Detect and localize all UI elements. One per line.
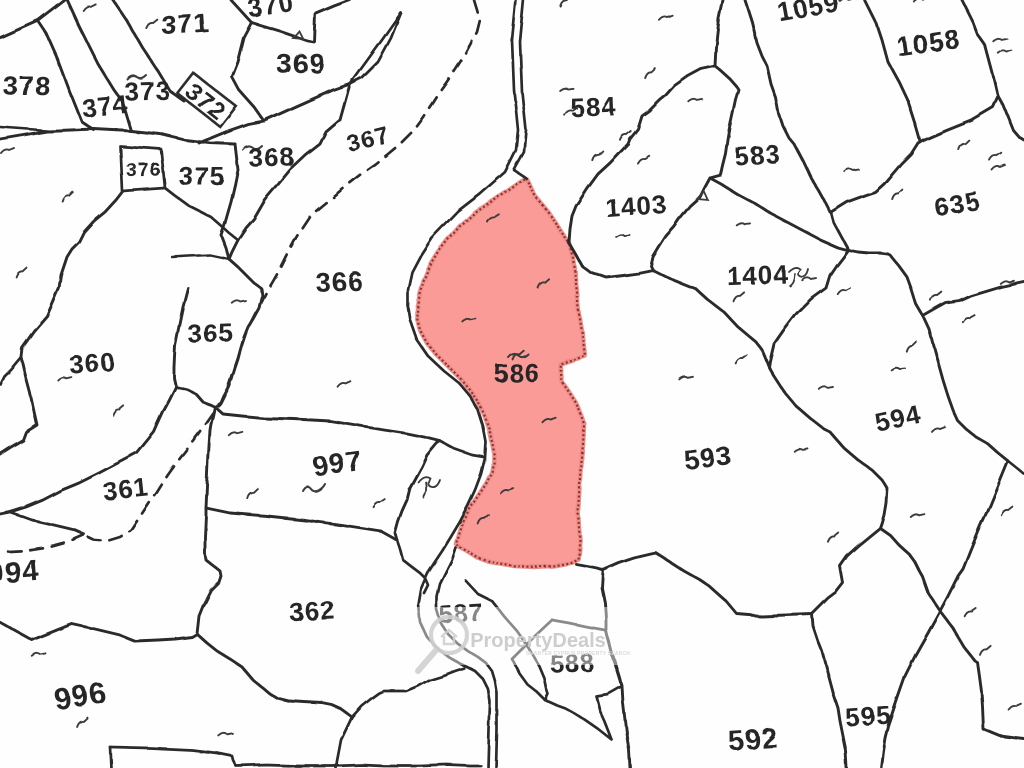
svg-text:360: 360 — [68, 346, 116, 379]
svg-text:374: 374 — [80, 89, 129, 124]
svg-text:375: 375 — [179, 161, 225, 191]
svg-text:362: 362 — [289, 595, 337, 627]
svg-text:373: 373 — [124, 75, 171, 107]
svg-text:378: 378 — [3, 71, 51, 101]
svg-text:PropertyDeals: PropertyDeals — [470, 630, 606, 652]
svg-text:592: 592 — [727, 722, 779, 756]
svg-text:376: 376 — [126, 159, 161, 181]
svg-text:361: 361 — [101, 472, 150, 507]
svg-text:1404: 1404 — [726, 259, 789, 291]
svg-text:1403: 1403 — [604, 189, 668, 223]
svg-text:583: 583 — [733, 138, 781, 171]
svg-text:586: 586 — [494, 358, 540, 388]
svg-text:366: 366 — [315, 266, 364, 298]
svg-text:371: 371 — [160, 7, 210, 40]
svg-text:593: 593 — [683, 441, 734, 476]
svg-text:SMARTER CYPRUS PROPERTY SEARCH: SMARTER CYPRUS PROPERTY SEARCH — [526, 651, 630, 657]
svg-text:994: 994 — [0, 554, 41, 591]
svg-text:595: 595 — [844, 699, 892, 732]
svg-text:584: 584 — [570, 91, 617, 123]
svg-text:369: 369 — [276, 48, 326, 79]
svg-text:365: 365 — [187, 317, 234, 349]
svg-text:368: 368 — [248, 141, 295, 173]
